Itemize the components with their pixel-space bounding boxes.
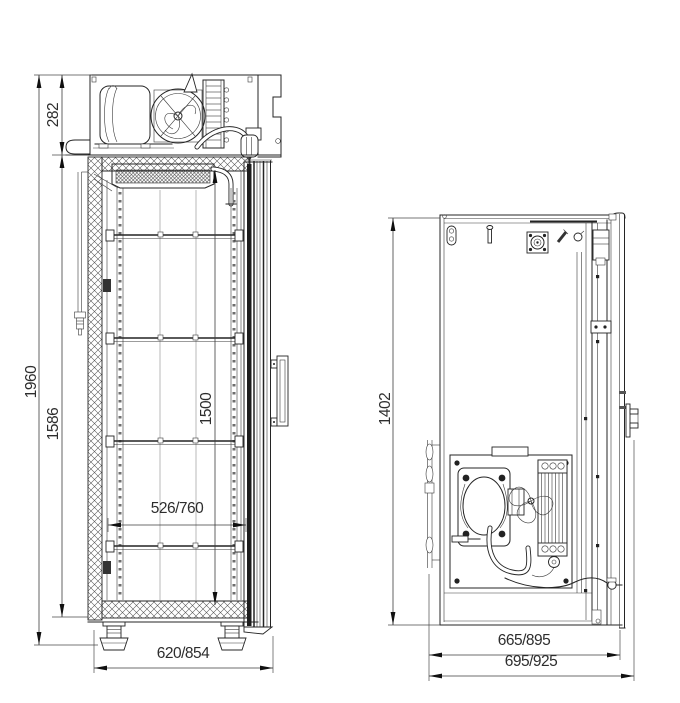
door-handle-side (626, 404, 638, 437)
condenser-fan-top (508, 487, 553, 523)
dimension-label: 1960 (23, 365, 40, 398)
hinge-block (103, 561, 111, 574)
top-fasteners (447, 226, 584, 254)
door-handle (271, 356, 288, 426)
dimension-label: 282 (45, 103, 62, 127)
dimension-side-height: 1402 (377, 218, 440, 625)
dimension-label: 1402 (377, 393, 394, 425)
diagonal-screw (558, 232, 566, 242)
shelf (106, 436, 243, 447)
slot-screw (574, 233, 582, 241)
filter-drier (549, 557, 560, 568)
foot (218, 622, 246, 650)
hinge-plate (593, 230, 609, 260)
dimension-label: 526/760 (151, 500, 204, 517)
machine-compartment (66, 74, 281, 166)
screw-pin (488, 228, 492, 243)
dimension-label: 665/895 (498, 632, 551, 649)
refrigerated-cabinet-drawing: 1960 282 1586 1500 526/7 (0, 0, 680, 703)
handle-screw (619, 406, 626, 409)
dimension-overall-height: 1960 (23, 75, 98, 645)
condenser-coil-side (538, 460, 567, 556)
foot (100, 622, 128, 650)
handle-screw (619, 391, 626, 394)
glass-door (244, 160, 288, 634)
cable-gland (527, 232, 548, 253)
dimension-label: 1586 (45, 408, 62, 440)
hinge-block (103, 279, 111, 292)
dimension-label: 1500 (198, 392, 215, 425)
shelf (106, 230, 243, 241)
back-bracket (425, 440, 440, 568)
belt-guard (184, 74, 197, 92)
dimension-interior-width: 526/760 (108, 500, 246, 532)
technical-drawing-page: 1960 282 1586 1500 526/7 (0, 0, 680, 703)
side-view: 1402 665/895 695/925 (377, 213, 638, 681)
shelf-support-columns (117, 188, 237, 600)
shelf (106, 333, 243, 344)
lock-bracket (591, 321, 611, 333)
condenser-fan (151, 89, 205, 143)
dimension-label: 695/925 (505, 653, 558, 670)
shelf (106, 541, 243, 552)
compartment-tubes (452, 528, 622, 589)
machine-compartment-side (450, 447, 622, 589)
door-bottom-flap (244, 627, 272, 634)
compressor-top-view (458, 468, 510, 546)
door-gasket (247, 164, 252, 626)
dimension-label: 620/854 (157, 645, 210, 662)
front-section-view: 1960 282 1586 1500 526/7 (23, 74, 288, 673)
drain-tube (75, 172, 89, 335)
condensate-bracket (66, 140, 90, 154)
